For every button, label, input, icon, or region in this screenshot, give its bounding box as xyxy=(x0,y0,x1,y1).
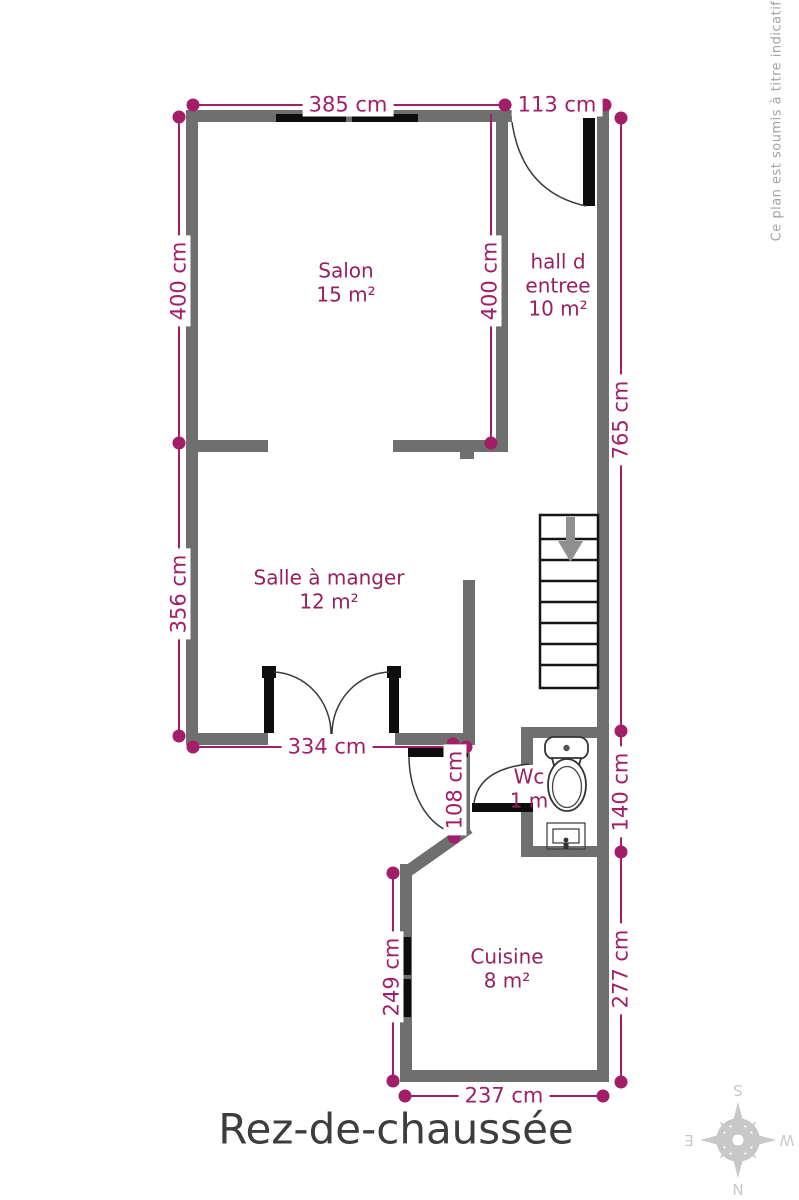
page-title: Rez-de-chaussée xyxy=(218,1105,574,1154)
room-label-hall: hall d entree 10 m² xyxy=(525,251,590,322)
dim-label-salle-left: 356 cm xyxy=(168,549,191,640)
sink-faucet-icon xyxy=(564,838,569,843)
sink-faucet-base-icon xyxy=(564,843,569,849)
dim-dot xyxy=(615,1076,628,1089)
dim-label-salon-right: 400 cm xyxy=(479,236,502,327)
door-entry-swing-arc xyxy=(512,122,586,206)
wall-wc-left-upper xyxy=(521,727,533,765)
dim-dot xyxy=(499,99,512,112)
compass-label-north: N xyxy=(732,1180,743,1198)
room-label-salle-a-manger: Salle à manger 12 m² xyxy=(254,566,405,613)
dim-dot xyxy=(615,112,628,125)
dim-label-wc-right: 140 cm xyxy=(610,747,633,838)
room-area: 12 m² xyxy=(254,590,405,614)
dim-dot xyxy=(173,111,186,124)
dim-dot xyxy=(387,1075,400,1088)
compass-rose-icon: N E S W xyxy=(684,1081,794,1198)
dim-label-hall-top: 113 cm xyxy=(512,94,603,117)
compass-label-east: E xyxy=(684,1131,693,1149)
dim-label-right-total: 765 cm xyxy=(610,375,633,466)
room-name: Salon xyxy=(316,259,375,283)
room-label-wc: Wc 1 m xyxy=(510,765,549,812)
wall-left xyxy=(186,110,198,745)
room-name: Wc xyxy=(510,765,549,789)
dim-dot xyxy=(187,99,200,112)
stairs-direction-arrow-shaft xyxy=(566,517,575,543)
room-name: Salle à manger xyxy=(254,566,405,590)
room-area: 1 m xyxy=(510,789,549,813)
dim-dot xyxy=(597,1090,610,1103)
room-name: Cuisine xyxy=(470,945,543,969)
dim-dot xyxy=(387,867,400,880)
door-double-right-leaf xyxy=(389,668,399,733)
wall-salle-bottom-left xyxy=(186,733,268,745)
compass-label-west: W xyxy=(779,1131,794,1149)
door-double-left-arc xyxy=(274,672,331,734)
dim-label-salle-bottom: 334 cm xyxy=(282,736,373,759)
toilet-button-icon xyxy=(563,745,569,751)
door-double-left-leaf xyxy=(264,668,274,733)
dim-dot xyxy=(399,1090,412,1103)
floor-plan-page: N E S W 385 cm 113 cm 400 cm 400 cm 765 … xyxy=(0,0,799,1200)
room-name: entree xyxy=(525,274,590,298)
dim-label-cuisine-left: 249 cm xyxy=(381,932,404,1023)
dim-dot xyxy=(615,846,628,859)
dim-dot xyxy=(187,741,200,754)
wall-notch xyxy=(460,452,474,459)
room-label-salon: Salon 15 m² xyxy=(316,259,375,306)
dim-label-salon-top: 385 cm xyxy=(303,94,394,117)
dim-dot xyxy=(173,437,186,450)
dim-label-salon-left: 400 cm xyxy=(168,236,191,327)
disclaimer-note: Ce plan est soumis à titre indicatif xyxy=(770,1,785,242)
wall-wc-left-lower xyxy=(521,808,533,852)
wall-salle-east-stub xyxy=(463,580,475,745)
wall-salon-salle-stub-left xyxy=(186,440,268,452)
dim-label-passage: 108 cm xyxy=(444,745,467,836)
room-area: 10 m² xyxy=(525,298,590,322)
door-double-right-arc xyxy=(332,672,389,734)
dim-dot xyxy=(485,437,498,450)
dim-label-cuisine-right: 277 cm xyxy=(610,924,633,1015)
room-name: hall d xyxy=(525,251,590,275)
room-area: 8 m² xyxy=(470,969,543,993)
door-entry-leaf xyxy=(583,118,595,206)
wall-kitchen-bottom xyxy=(400,1070,609,1082)
compass-center xyxy=(733,1135,744,1146)
compass-label-south: S xyxy=(733,1081,743,1099)
room-label-cuisine: Cuisine 8 m² xyxy=(470,945,543,992)
room-area: 15 m² xyxy=(316,283,375,307)
dim-dot xyxy=(173,730,186,743)
dim-dot xyxy=(615,725,628,738)
